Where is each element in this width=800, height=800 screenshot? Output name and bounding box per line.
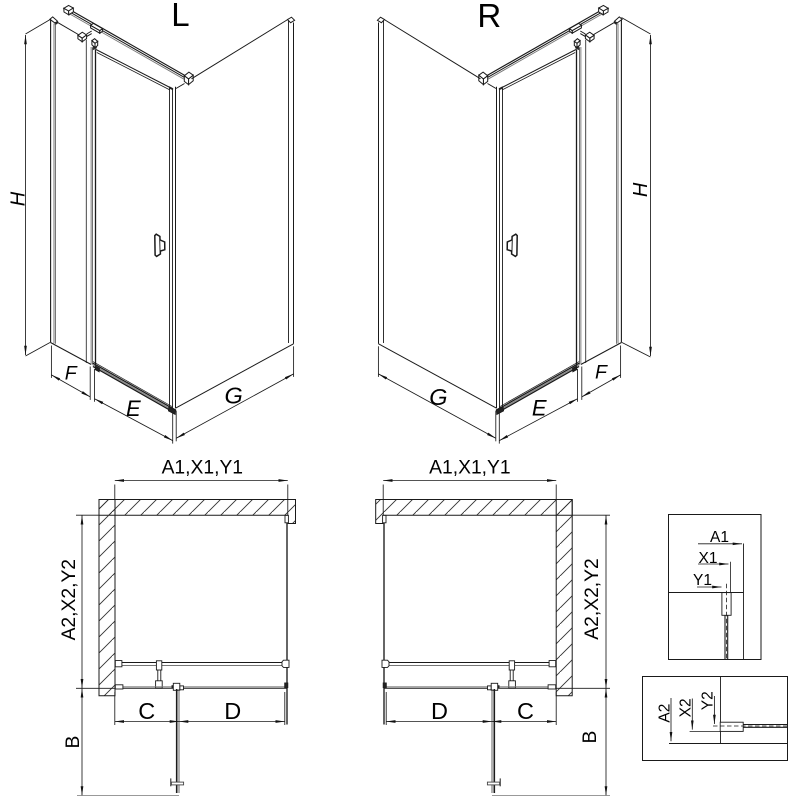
svg-text:H: H bbox=[7, 191, 29, 206]
svg-text:A2,X2,Y2: A2,X2,Y2 bbox=[582, 558, 603, 639]
svg-text:D: D bbox=[224, 698, 241, 724]
svg-text:A2,X2,Y2: A2,X2,Y2 bbox=[59, 559, 80, 640]
svg-text:Y2: Y2 bbox=[699, 691, 716, 710]
svg-text:R: R bbox=[477, 0, 501, 34]
svg-text:C: C bbox=[138, 698, 155, 724]
svg-text:E: E bbox=[126, 396, 141, 421]
svg-text:B: B bbox=[580, 731, 601, 744]
svg-text:X1: X1 bbox=[699, 550, 718, 567]
svg-text:C: C bbox=[517, 698, 534, 724]
svg-text:G: G bbox=[225, 382, 243, 408]
svg-text:A1: A1 bbox=[710, 529, 729, 546]
svg-text:A2: A2 bbox=[656, 704, 673, 723]
svg-text:H: H bbox=[630, 182, 652, 197]
svg-text:L: L bbox=[171, 0, 189, 33]
svg-text:A1,X1,Y1: A1,X1,Y1 bbox=[162, 457, 243, 478]
svg-text:A1,X1,Y1: A1,X1,Y1 bbox=[429, 457, 510, 478]
svg-text:Y1: Y1 bbox=[693, 572, 712, 589]
svg-text:G: G bbox=[429, 384, 447, 410]
svg-text:F: F bbox=[65, 363, 78, 385]
svg-text:B: B bbox=[63, 736, 84, 749]
svg-text:F: F bbox=[595, 362, 608, 384]
svg-text:D: D bbox=[431, 698, 448, 724]
svg-text:E: E bbox=[532, 396, 547, 421]
svg-text:X2: X2 bbox=[678, 698, 695, 717]
